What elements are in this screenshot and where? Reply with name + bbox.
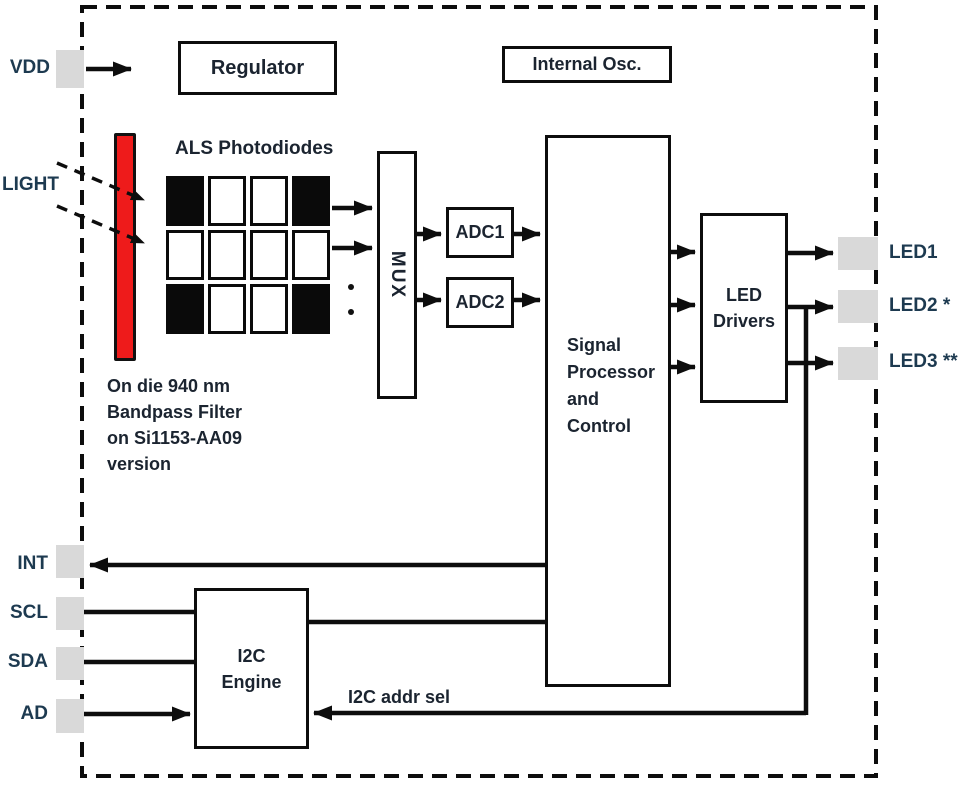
regulator-label: Regulator — [211, 57, 304, 80]
led1-pin — [838, 237, 878, 270]
ad-label: AD — [2, 703, 48, 725]
photodiode-cell — [250, 176, 288, 226]
internal-osc-block: Internal Osc. — [502, 46, 672, 83]
light-label: LIGHT — [2, 174, 59, 196]
bandpass-filter-bar — [114, 133, 136, 361]
sda-label: SDA — [2, 651, 48, 673]
adc1-label: ADC1 — [455, 222, 504, 243]
photodiode-cell — [292, 230, 330, 280]
photodiode-cell — [166, 176, 204, 226]
photodiode-cell — [166, 284, 204, 334]
photodiode-cell — [208, 284, 246, 334]
bandpass-filter-note: On die 940 nm Bandpass Filter on Si1153-… — [107, 373, 242, 477]
i2c-addr-sel-label: I2C addr sel — [348, 687, 450, 708]
i2c-engine-block: I2C Engine — [194, 588, 309, 749]
adc2-block: ADC2 — [446, 277, 514, 328]
led3-label: LED3 ** — [889, 351, 958, 373]
adc1-block: ADC1 — [446, 207, 514, 258]
scl-pin — [56, 597, 84, 630]
mux-label: MUX — [386, 251, 408, 299]
photodiode-cell — [166, 230, 204, 280]
int-pin — [56, 545, 84, 578]
als-photodiodes-label: ALS Photodiodes — [175, 138, 333, 160]
si115x-block-diagram: Regulator Internal Osc. MUX ADC1 ADC2 Si… — [0, 0, 963, 787]
regulator-block: Regulator — [178, 41, 337, 95]
int-label: INT — [2, 553, 48, 575]
vdd-label: VDD — [4, 57, 50, 79]
vdd-pin — [56, 50, 84, 88]
adc2-label: ADC2 — [455, 292, 504, 313]
led2-label: LED2 * — [889, 295, 950, 317]
photodiode-cell — [208, 230, 246, 280]
photodiode-cell — [292, 176, 330, 226]
photodiode-grid — [166, 176, 330, 334]
photodiode-cell — [250, 230, 288, 280]
led-drivers-block: LED Drivers — [700, 213, 788, 403]
ellipsis-dot — [348, 309, 354, 315]
photodiode-cell — [292, 284, 330, 334]
signal-processor-block: Signal Processor and Control — [545, 135, 671, 687]
photodiode-cell — [208, 176, 246, 226]
scl-label: SCL — [2, 602, 48, 624]
photodiode-cell — [250, 284, 288, 334]
mux-block: MUX — [377, 151, 417, 399]
sda-pin — [56, 647, 84, 680]
internal-osc-label: Internal Osc. — [532, 54, 641, 75]
led2-pin — [838, 290, 878, 323]
led3-pin — [838, 347, 878, 380]
ellipsis-dot — [348, 284, 354, 290]
signal-processor-label: Signal Processor and Control — [567, 332, 655, 440]
led1-label: LED1 — [889, 242, 938, 264]
led-drivers-label: LED Drivers — [713, 282, 775, 334]
i2c-engine-label: I2C Engine — [221, 643, 281, 695]
ad-pin — [56, 699, 84, 733]
